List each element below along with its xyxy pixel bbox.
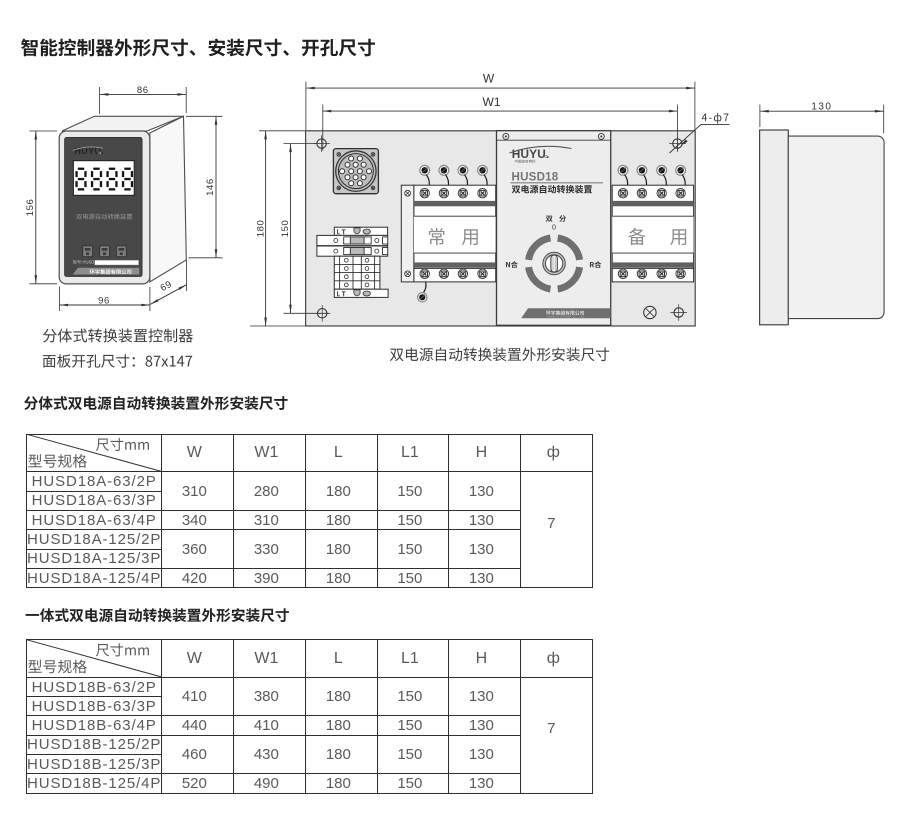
svg-text:156: 156 [25,199,36,217]
svg-text:HUYU.: HUYU. [512,147,550,161]
svg-text:130: 130 [811,102,832,113]
svg-text:146: 146 [205,178,216,196]
svg-text:HUANYU GROUP CO.,LTD.: HUANYU GROUP CO.,LTD. [547,315,586,319]
svg-text:69: 69 [159,279,175,294]
svg-text:HUSD18: HUSD18 [512,170,559,183]
svg-text:150: 150 [280,220,291,238]
svg-text:0: 0 [552,224,556,231]
svg-text:W: W [483,72,495,86]
svg-text:96: 96 [98,296,110,307]
svg-text::HUSD: :HUSD [81,260,94,265]
svg-text:86: 86 [137,85,149,96]
svg-text:W1: W1 [483,95,501,109]
svg-text:HUYU.: HUYU. [74,146,104,156]
svg-text:180: 180 [255,220,266,238]
